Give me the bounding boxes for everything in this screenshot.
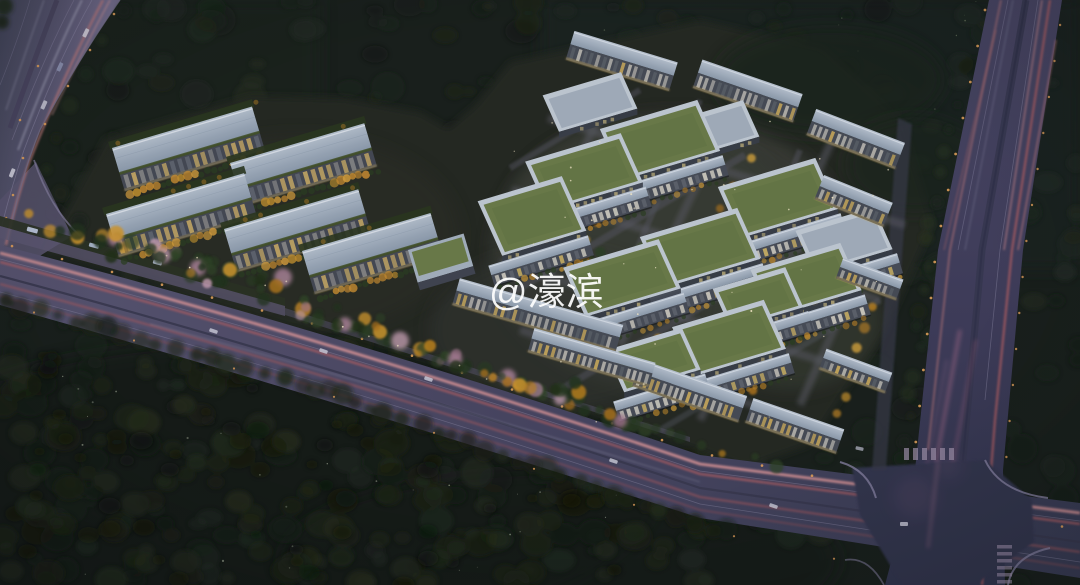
svg-text:@濠滨: @濠滨 bbox=[489, 272, 604, 314]
